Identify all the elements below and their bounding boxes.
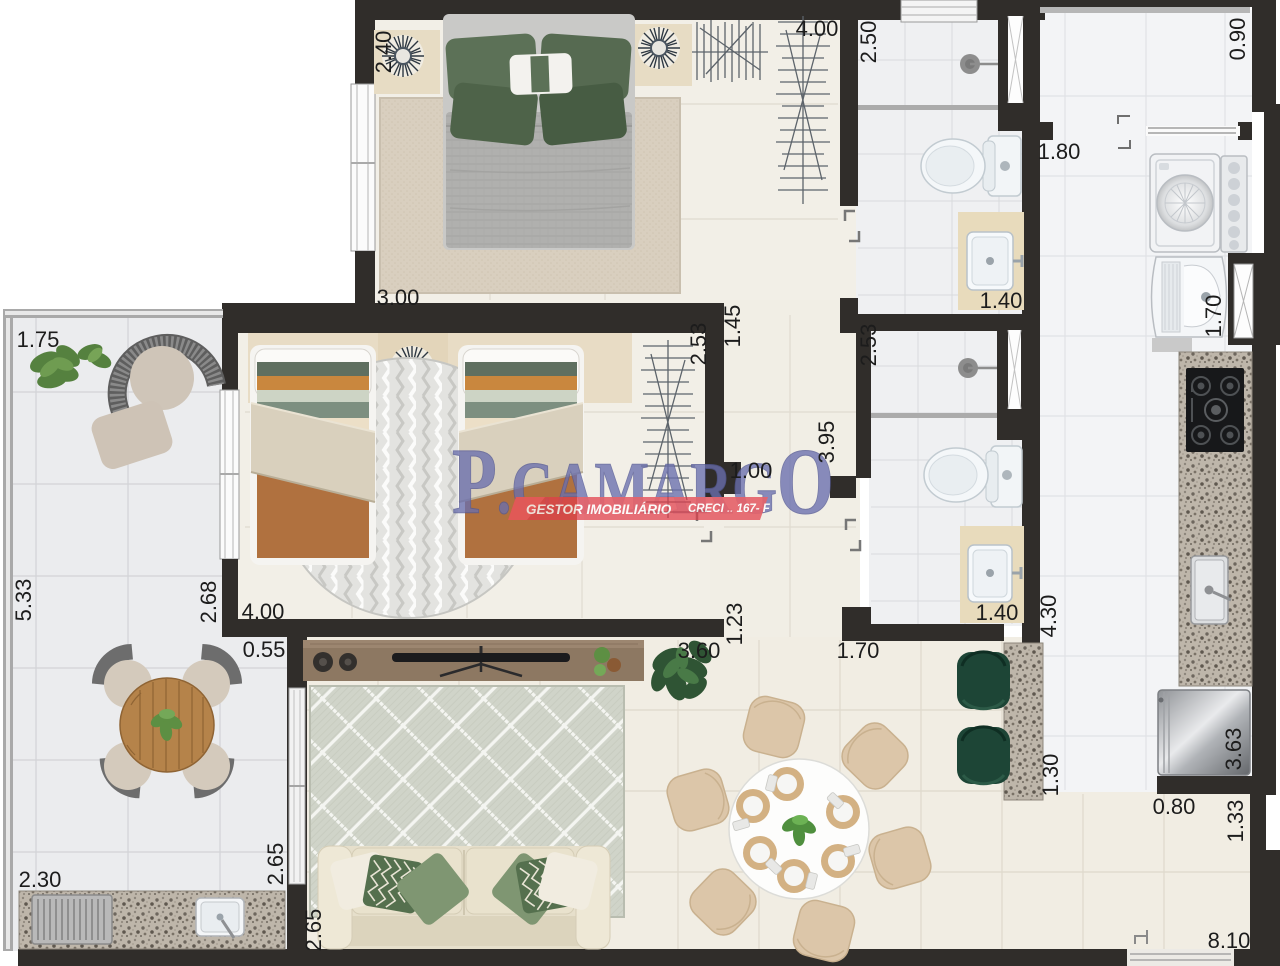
svg-text:8.10: 8.10 xyxy=(1208,928,1251,953)
svg-text:2.50: 2.50 xyxy=(856,21,881,64)
svg-text:1.23: 1.23 xyxy=(722,603,747,646)
svg-text:3.95: 3.95 xyxy=(814,421,839,464)
svg-text:1.00: 1.00 xyxy=(730,458,773,483)
svg-text:4.00: 4.00 xyxy=(242,599,285,624)
svg-text:2.53: 2.53 xyxy=(856,324,881,367)
svg-text:2.68: 2.68 xyxy=(196,581,221,624)
svg-text:2.40: 2.40 xyxy=(371,31,396,74)
svg-text:GESTOR IMOBILIÁRIO: GESTOR IMOBILIÁRIO xyxy=(526,502,672,517)
svg-text:1.70: 1.70 xyxy=(837,638,880,663)
svg-text:2.65: 2.65 xyxy=(301,909,326,952)
svg-text:3.60: 3.60 xyxy=(678,638,721,663)
svg-text:1.80: 1.80 xyxy=(1038,139,1081,164)
svg-text:1.70: 1.70 xyxy=(1201,295,1226,338)
svg-text:3.63: 3.63 xyxy=(1221,728,1246,771)
svg-text:3.00: 3.00 xyxy=(377,285,420,310)
svg-text:0.80: 0.80 xyxy=(1153,794,1196,819)
svg-text:1.30: 1.30 xyxy=(1038,754,1063,797)
svg-text:5.33: 5.33 xyxy=(11,579,36,622)
svg-text:2.30: 2.30 xyxy=(19,867,62,892)
svg-text:CRECI .. 167- F: CRECI .. 167- F xyxy=(688,503,771,515)
svg-text:4.30: 4.30 xyxy=(1036,595,1061,638)
svg-text:2.53: 2.53 xyxy=(686,323,711,366)
svg-text:4.00: 4.00 xyxy=(796,16,839,41)
svg-text:2.65: 2.65 xyxy=(263,843,288,886)
svg-text:1.33: 1.33 xyxy=(1223,800,1248,843)
svg-text:1.45: 1.45 xyxy=(720,305,745,348)
svg-text:1.40: 1.40 xyxy=(976,600,1019,625)
svg-text:0.55: 0.55 xyxy=(243,637,286,662)
svg-text:1.40: 1.40 xyxy=(980,288,1023,313)
svg-text:0.90: 0.90 xyxy=(1225,18,1250,61)
svg-text:1.75: 1.75 xyxy=(17,327,60,352)
